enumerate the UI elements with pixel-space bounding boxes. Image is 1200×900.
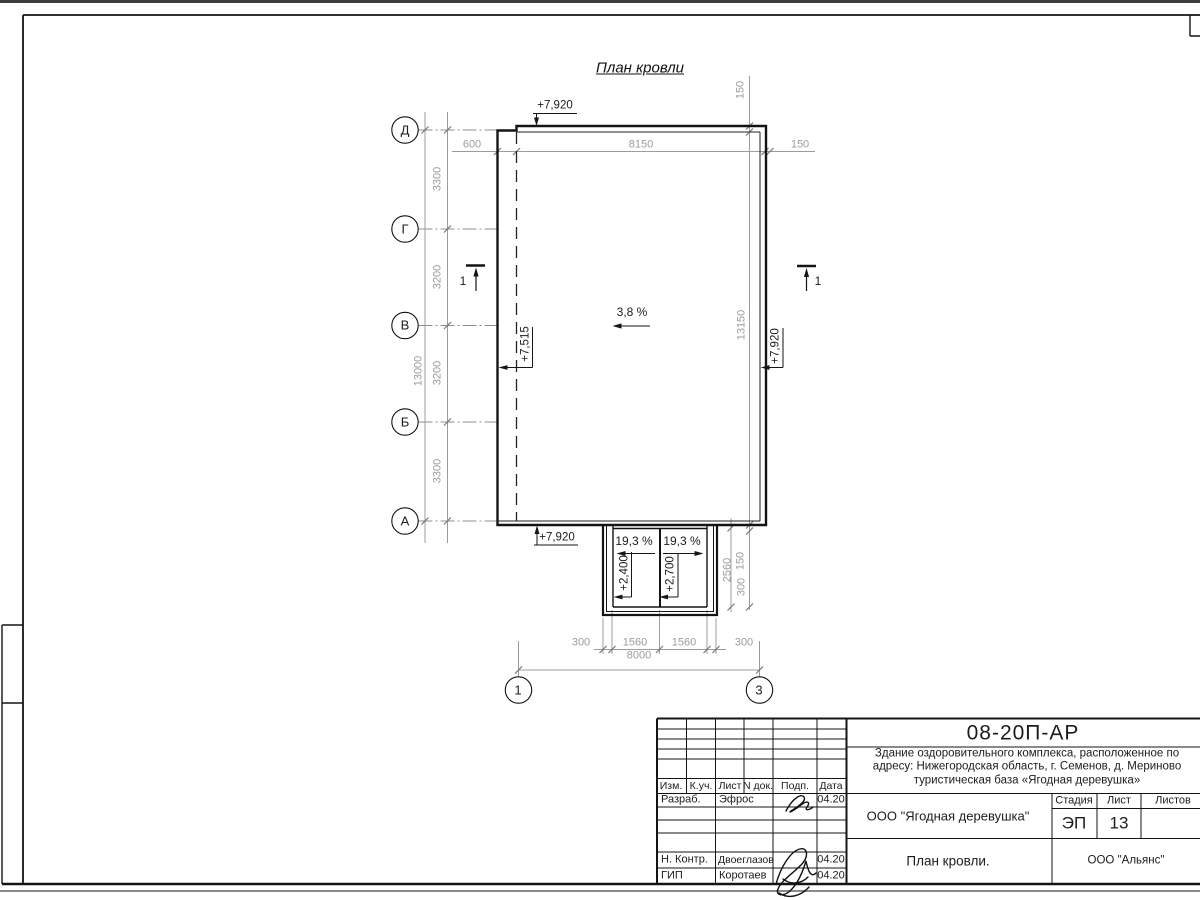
col-list: Лист <box>719 781 742 792</box>
col-data: Дата <box>819 781 842 792</box>
project-line-1: Здание оздоровительного комплекса, распо… <box>875 748 1179 760</box>
dim-right-total-13150: 13150 <box>737 310 748 341</box>
row-razrab-name: Эфрос <box>719 795 754 806</box>
col-podp: Подп. <box>781 781 809 792</box>
slope-porch-left-label: 19,3 % <box>615 535 652 547</box>
elevation-bottom-label: +7,920 <box>539 532 575 544</box>
dim-bottom-1560b: 1560 <box>672 638 696 649</box>
col-stadia: Стадия <box>1055 796 1093 807</box>
axis-label-b: Б <box>401 416 410 429</box>
col-sheets: Листов <box>1155 796 1191 807</box>
titleblock-code: 08-20П-АР <box>967 723 1080 744</box>
dim-bottom-total-8000: 8000 <box>627 651 651 662</box>
signature-2 <box>776 849 816 895</box>
row-razrab-date: 04.20 <box>817 795 845 806</box>
slope-main-label: 3,8 % <box>617 306 648 318</box>
dim-bottom-1560a: 1560 <box>623 638 647 649</box>
elevation-porch-right-label: +2,700 <box>665 556 677 592</box>
titleblock-org: ООО "Ягодная деревушка" <box>867 810 1030 823</box>
axis-label-d: Д <box>401 124 410 137</box>
dim-left-3200a: 3200 <box>433 265 444 289</box>
dim-top-600: 600 <box>463 140 481 151</box>
plan-title: План кровли <box>596 61 684 76</box>
dim-porch-300: 300 <box>737 578 748 596</box>
section-mark-label-left: 1 <box>460 275 467 287</box>
project-line-3: туристическая база «Ягодная деревушка» <box>914 775 1140 787</box>
elevation-right-label: +7,920 <box>770 328 782 364</box>
signatures <box>776 796 816 897</box>
dim-porch-150: 150 <box>736 552 747 570</box>
row-nkontr-role: Н. Контр. <box>661 855 708 866</box>
dim-bottom-300a: 300 <box>572 638 590 649</box>
row-razrab-role: Разраб. <box>661 795 701 806</box>
row-gip-date: 04.20 <box>817 871 845 882</box>
elevation-left-label: +7,515 <box>520 326 532 362</box>
axis-label-a: А <box>401 515 410 528</box>
sheet-number: 13 <box>1110 815 1129 832</box>
axis-label-3: 3 <box>755 684 762 697</box>
signature-1 <box>786 796 813 812</box>
col-izm: Изм. <box>660 781 683 792</box>
elevation-top-label: +7,920 <box>537 100 573 112</box>
titleblock-doc-title: План кровли. <box>906 854 989 868</box>
dim-left-3200b: 3200 <box>433 361 444 385</box>
dim-porch-2560: 2560 <box>723 558 734 582</box>
dim-top-8150: 8150 <box>629 140 653 151</box>
dim-top-right-150: 150 <box>736 81 747 99</box>
axis-label-g: Г <box>401 223 408 236</box>
row-gip-name: Коротаев <box>719 871 767 882</box>
dim-left-3300b: 3300 <box>433 459 444 483</box>
axis-lines <box>419 130 760 677</box>
col-sheet: Лист <box>1107 796 1131 807</box>
titleblock-company: ООО "Альянс" <box>1088 855 1165 867</box>
slope-porch-right-label: 19,3 % <box>663 535 700 547</box>
elevation-leaders <box>499 114 784 600</box>
col-ndok: N док. <box>743 781 773 792</box>
elevation-porch-left-label: +2,400 <box>619 555 631 591</box>
stage-value: ЭП <box>1062 815 1086 832</box>
section-marks <box>466 266 816 292</box>
row-gip-role: ГИП <box>661 871 683 882</box>
section-mark-label-right: 1 <box>815 275 822 287</box>
dim-left-3300a: 3300 <box>433 167 444 191</box>
row-nkontr-date: 04.20 <box>817 855 845 866</box>
axis-label-1: 1 <box>514 684 521 697</box>
axis-label-v: В <box>401 319 410 332</box>
dimension-ticks <box>422 123 774 674</box>
dim-bottom-300b: 300 <box>735 638 753 649</box>
col-kuch: К.уч. <box>690 781 713 792</box>
dim-top-150: 150 <box>791 140 809 151</box>
project-line-2: адресу: Нижегородская область, г. Семено… <box>873 761 1182 773</box>
dim-left-total-13000: 13000 <box>414 356 425 387</box>
row-nkontr-name: Двоеглазов <box>718 855 774 866</box>
drawing-sheet: { "colors": { "line": "#1a1a1a", "dim_gr… <box>0 0 1200 900</box>
